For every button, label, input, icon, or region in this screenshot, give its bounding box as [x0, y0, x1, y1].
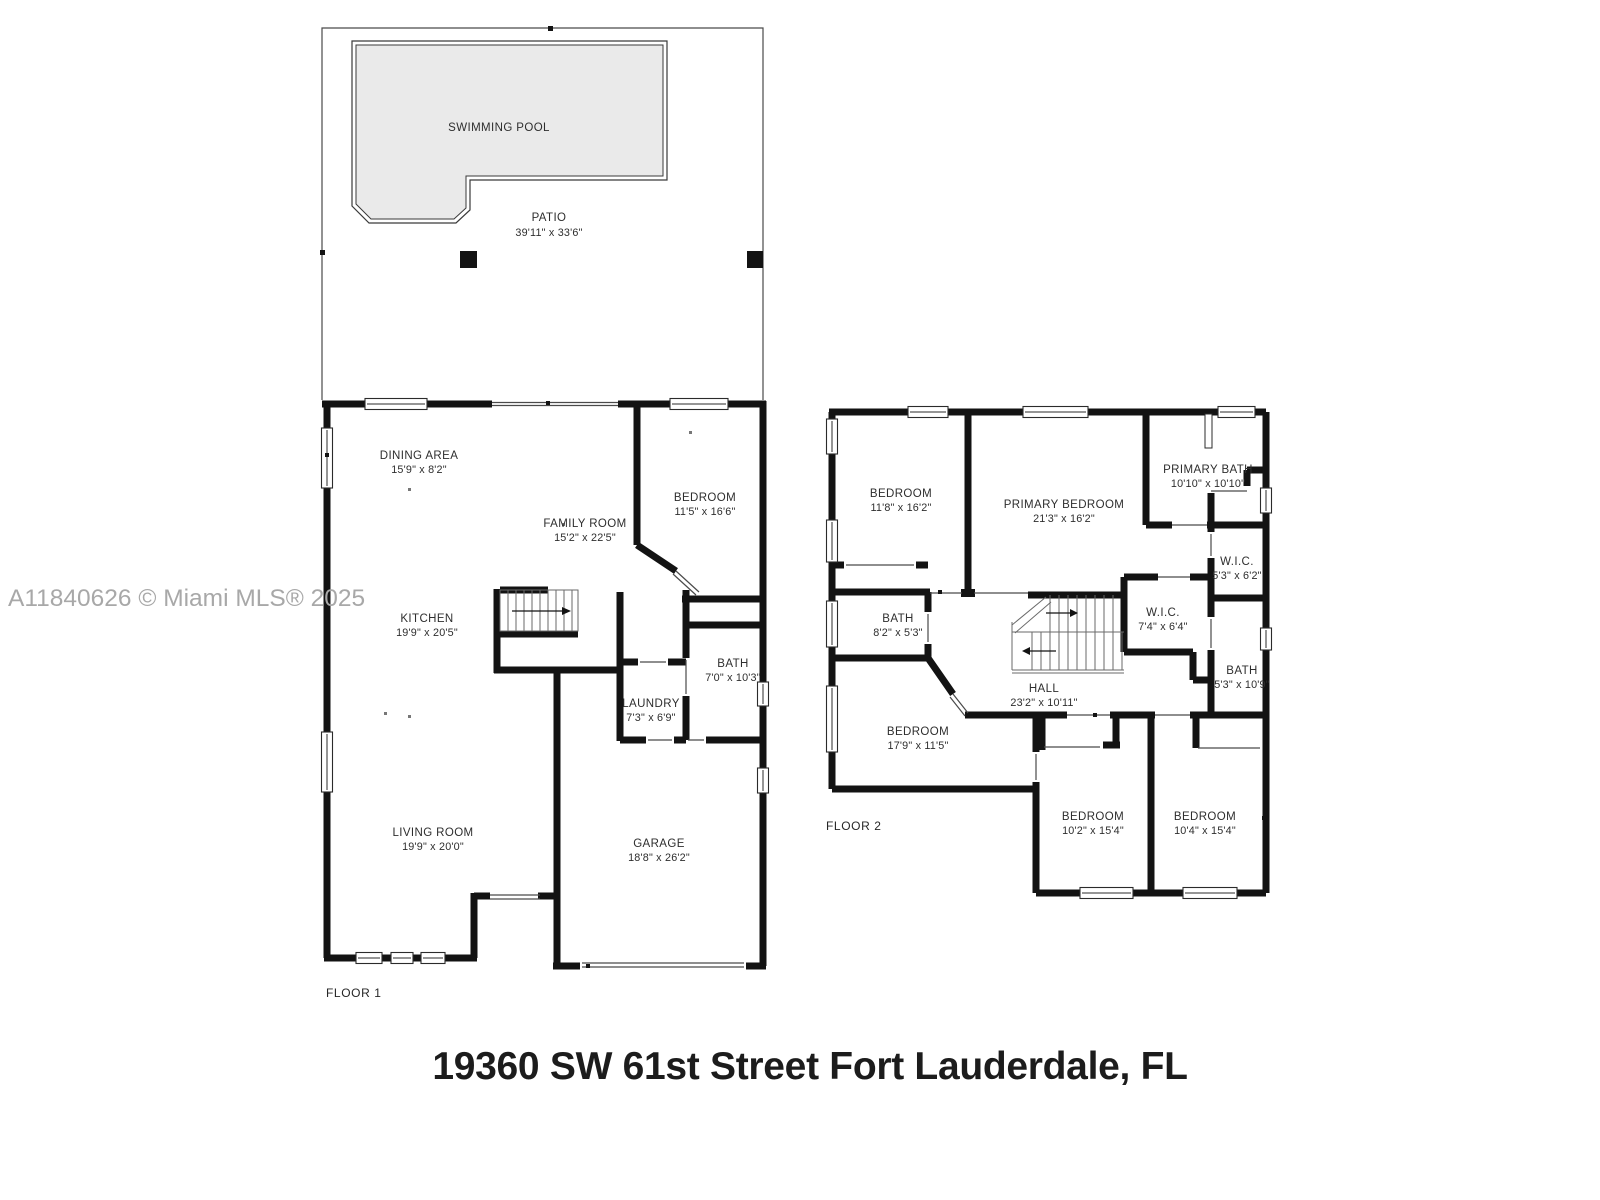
room-label-hall: HALL [1029, 683, 1060, 695]
floorplan-page: SWIMMING POOL PATIO 39'11" x 33'6" [0, 0, 1600, 1200]
wall-end-cap [961, 589, 975, 597]
room-dims-family: 15'2" x 22'5" [554, 532, 616, 544]
room-dims-bath-right: 5'3" x 10'9" [1214, 679, 1270, 691]
window [421, 953, 445, 964]
patio-dims: 39'11" x 33'6" [515, 227, 582, 239]
room-label-living: LIVING ROOM [392, 827, 473, 839]
closet-slider [844, 561, 916, 569]
room-label-bath-right: BATH [1226, 665, 1257, 677]
window [1183, 888, 1237, 899]
room-dims-kitchen: 19'9" x 20'5" [396, 627, 458, 639]
shower-divider [1205, 414, 1212, 448]
staircase-floor1 [500, 590, 578, 631]
room-dims-bedroom3: 17'9" x 11'5" [887, 740, 948, 752]
room-label-wic-large: W.I.C. [1146, 607, 1180, 619]
room-label-bedroom-f1: BEDROOM [674, 492, 736, 504]
window [827, 520, 838, 562]
floor1-openings [490, 403, 704, 900]
room-dims-hall: 23'2" x 10'11" [1010, 697, 1077, 709]
window [322, 428, 333, 488]
window [758, 682, 769, 706]
window [1080, 888, 1133, 899]
room-label-garage: GARAGE [633, 838, 685, 850]
room-label-primary-bath: PRIMARY BATH [1163, 464, 1253, 476]
stair-arrow-icon [562, 607, 571, 615]
room-dims-bedroom2: 11'8" x 16'2" [870, 502, 931, 514]
patio-tick [320, 250, 325, 255]
window [1261, 488, 1272, 513]
window [908, 407, 948, 418]
floor2-label: FLOOR 2 [826, 819, 882, 833]
window [391, 953, 413, 964]
mls-watermark: A11840626 © Miami MLS® 2025 [8, 585, 365, 612]
floor1-walls [322, 401, 766, 966]
window [1261, 628, 1272, 650]
window [758, 768, 769, 793]
room-label-dining: DINING AREA [380, 450, 459, 462]
staircase-floor2 [1012, 595, 1124, 673]
window [827, 686, 838, 752]
room-dims-bedroom4: 10'2" x 15'4" [1062, 825, 1124, 837]
swimming-pool: SWIMMING POOL [352, 41, 667, 223]
room-label-family: FAMILY ROOM [543, 518, 626, 530]
room-label-bedroom2: BEDROOM [870, 488, 932, 500]
window [827, 601, 838, 647]
room-label-bedroom4: BEDROOM [1062, 811, 1124, 823]
patio-label: PATIO [532, 212, 567, 224]
stair-banister [1012, 597, 1051, 633]
address-title: 19360 SW 61st Street Fort Lauderdale, FL [432, 1045, 1187, 1088]
stair-arrow-icon [1022, 647, 1030, 655]
window [670, 399, 728, 410]
room-label-bath-small: BATH [882, 613, 913, 625]
window [322, 732, 333, 792]
room-dims-dining: 15'9" x 8'2" [391, 464, 447, 476]
room-label-bedroom5: BEDROOM [1174, 811, 1236, 823]
room-dims-laundry: 7'3" x 6'9" [626, 712, 675, 724]
garage-door-gap [580, 960, 746, 972]
pool-label: SWIMMING POOL [448, 122, 550, 134]
room-label-kitchen: KITCHEN [400, 613, 453, 625]
room-dims-living: 19'9" x 20'0" [402, 841, 464, 853]
room-dims-bath-small: 8'2" x 5'3" [873, 627, 922, 639]
room-dims-wic-small: 5'3" x 6'2" [1212, 570, 1261, 582]
room-label-bedroom3: BEDROOM [887, 726, 949, 738]
floor2-openings [928, 491, 1260, 780]
floor1-windows [322, 399, 769, 964]
room-dims-primary-bath: 10'10" x 10'10" [1171, 478, 1245, 490]
room-dims-bath-f1: 7'0" x 10'3" [705, 672, 761, 684]
room-label-bath-f1: BATH [717, 658, 748, 670]
room-label-laundry: LAUNDRY [622, 698, 680, 710]
window [365, 399, 427, 410]
room-dims-wic-large: 7'4" x 6'4" [1138, 621, 1187, 633]
patio-column [747, 251, 763, 268]
room-label-wic-small: W.I.C. [1220, 556, 1254, 568]
window [1218, 407, 1255, 418]
patio-column [460, 251, 477, 268]
window [827, 419, 838, 454]
window [1023, 407, 1088, 418]
room-dims-garage: 18'8" x 26'2" [628, 852, 690, 864]
garage-door [580, 960, 746, 972]
patio-tick [548, 26, 553, 31]
floorplan-drawing: SWIMMING POOL PATIO 39'11" x 33'6" [0, 0, 1600, 1200]
floor1-ticks [325, 401, 765, 968]
window [356, 953, 382, 964]
room-dims-bedroom5: 10'4" x 15'4" [1174, 825, 1236, 837]
floor1-plan: SWIMMING POOL PATIO 39'11" x 33'6" [320, 26, 769, 1000]
floor2-plan: BEDROOM 11'8" x 16'2" PRIMARY BEDROOM 21… [826, 407, 1272, 899]
room-dims-primary-bedroom: 21'3" x 16'2" [1033, 513, 1095, 525]
floor1-label: FLOOR 1 [326, 986, 382, 1000]
room-label-primary-bedroom: PRIMARY BEDROOM [1004, 499, 1125, 511]
room-dims-bedroom-f1: 11'5" x 16'6" [674, 506, 735, 518]
